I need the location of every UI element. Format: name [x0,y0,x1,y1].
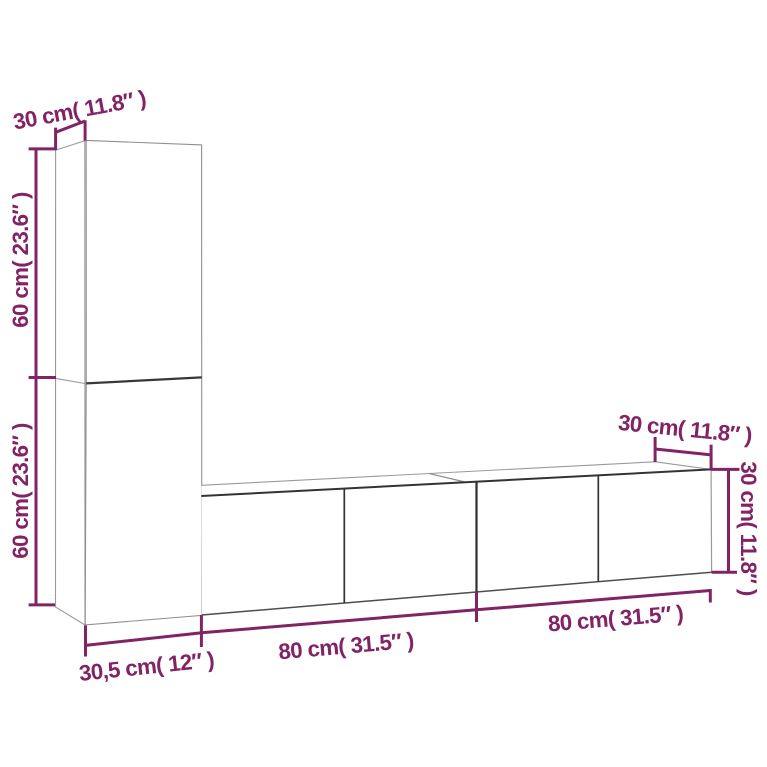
svg-text:60 cm( 23.6″ ): 60 cm( 23.6″ ) [8,423,33,559]
svg-text:60 cm( 23.6″ ): 60 cm( 23.6″ ) [8,192,33,328]
svg-text:30 cm( 11.8″ ): 30 cm( 11.8″ ) [736,461,761,595]
